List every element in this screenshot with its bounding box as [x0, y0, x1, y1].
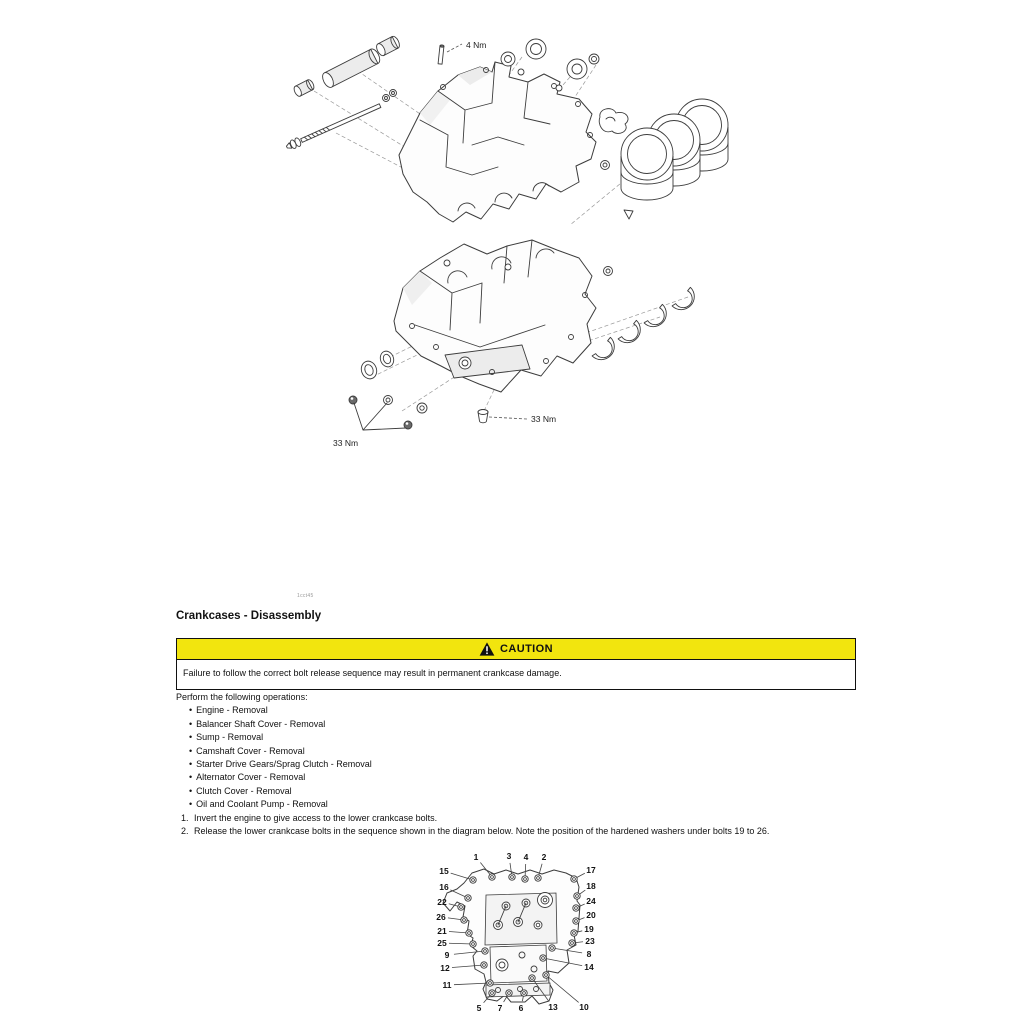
operation-item: Camshaft Cover - Removal: [189, 745, 871, 758]
bolt: [573, 905, 579, 911]
bolt-number-label: 21: [437, 926, 447, 936]
bolt: [569, 940, 575, 946]
procedure-section: Perform the following operations: Engine…: [176, 691, 871, 838]
bolt-number-label: 7: [498, 1003, 503, 1013]
clip: [505, 264, 511, 270]
bolt: [529, 975, 535, 981]
bolt: [571, 930, 577, 936]
breather-cover: [599, 109, 628, 134]
operation-item: Sump - Removal: [189, 731, 871, 744]
operation-item: Clutch Cover - Removal: [189, 785, 871, 798]
operation-item: Alternator Cover - Removal: [189, 771, 871, 784]
oil-seals: [359, 349, 396, 381]
washer: [390, 90, 397, 97]
procedure-intro: Perform the following operations:: [176, 691, 871, 704]
bolt: [509, 874, 515, 880]
clip: [444, 260, 450, 266]
bolt-number-label: 1: [474, 852, 479, 862]
exploded-crankcase-diagram: 4 Nm: [240, 25, 740, 465]
bolt-number-label: 16: [439, 882, 449, 892]
bolt: [489, 990, 495, 996]
bolt: [461, 917, 467, 923]
figure-code: 1cct45: [297, 593, 314, 599]
page-title: Crankcases - Disassembly: [176, 610, 321, 622]
clip: [624, 210, 633, 219]
bolt-number-label: 19: [584, 924, 594, 934]
bolt-number-label: 4: [524, 852, 529, 862]
step-item: 2.Release the lower crankcase bolts in t…: [176, 825, 871, 838]
stud-bolt: [285, 101, 382, 151]
bush: [375, 35, 401, 57]
bolt-number-label: 12: [440, 963, 450, 973]
seal: [601, 161, 610, 170]
crankcase-bottom-view: [443, 869, 580, 1004]
bolt: [521, 990, 527, 996]
bolt-number-label: 15: [439, 866, 449, 876]
bolt-number-label: 3: [507, 851, 512, 861]
bolt-number-label: 14: [584, 962, 594, 972]
operation-item: Engine - Removal: [189, 704, 871, 717]
bolt: [522, 876, 528, 882]
bolt: [470, 941, 476, 947]
bolt-number-label: 2: [542, 852, 547, 862]
bolt-number-label: 6: [519, 1003, 524, 1013]
bolt-number-label: 17: [586, 865, 596, 875]
bolt-number-label: 5: [477, 1003, 482, 1013]
operations-list: Engine - RemovalBalancer Shaft Cover - R…: [176, 704, 871, 811]
step-item: 1.Invert the engine to give access to th…: [176, 812, 871, 825]
bolt: [489, 874, 495, 880]
bolt: [466, 930, 472, 936]
bolt: [458, 904, 464, 910]
bolt: [535, 875, 541, 881]
bolt: [470, 877, 476, 883]
caution-label: CAUTION: [500, 643, 553, 655]
operation-item: Starter Drive Gears/Sprag Clutch - Remov…: [189, 758, 871, 771]
bolt: [540, 955, 546, 961]
torque-label-4nm: 4 Nm: [466, 40, 486, 50]
bolt-number-label: 22: [437, 897, 447, 907]
bolt: [506, 990, 512, 996]
bolt: [543, 972, 549, 978]
dowel-tube: [320, 47, 382, 89]
bolt-number-label: 25: [437, 938, 447, 948]
operation-item: Oil and Coolant Pump - Removal: [189, 798, 871, 811]
bolt: [482, 948, 488, 954]
lower-crankcase: [394, 240, 596, 392]
bush: [293, 79, 316, 98]
bolt-number-label: 11: [443, 980, 452, 990]
bolt-number-label: 23: [585, 936, 595, 946]
bolt-number-label: 10: [579, 1002, 589, 1012]
dowel-pin: [438, 45, 444, 64]
caution-box: CAUTION Failure to follow the correct bo…: [176, 638, 856, 690]
bolt-sequence-diagram: 1342151716182224262021192523981214111057…: [428, 843, 612, 1015]
bolt-number-label: 8: [587, 949, 592, 959]
operation-item: Balancer Shaft Cover - Removal: [189, 718, 871, 731]
bolt: [481, 962, 487, 968]
bolt-number-label: 26: [436, 912, 446, 922]
bolt: [549, 945, 555, 951]
torque-label-33nm-right: 33 Nm: [531, 414, 556, 424]
bolt-number-label: 9: [445, 950, 450, 960]
torque-label-33nm-left: 33 Nm: [333, 438, 358, 448]
bolt: [487, 980, 493, 986]
bolt-number-label: 13: [548, 1002, 558, 1012]
cylinder-liners: [621, 99, 728, 200]
bolt: [574, 893, 580, 899]
bolt: [465, 895, 471, 901]
bolt-number-label: 24: [586, 896, 596, 906]
upper-crankcase: [399, 62, 596, 222]
bolt-number-label: 18: [586, 881, 596, 891]
steps-list: 1.Invert the engine to give access to th…: [176, 812, 871, 839]
bolt: [573, 918, 579, 924]
bolt-number-label: 20: [586, 910, 596, 920]
bearing-shells: [592, 267, 697, 363]
warning-triangle-icon: [479, 642, 495, 656]
caution-header: CAUTION: [177, 639, 855, 660]
caution-text: Failure to follow the correct bolt relea…: [177, 660, 855, 689]
washer: [383, 95, 390, 102]
bolt: [571, 876, 577, 882]
